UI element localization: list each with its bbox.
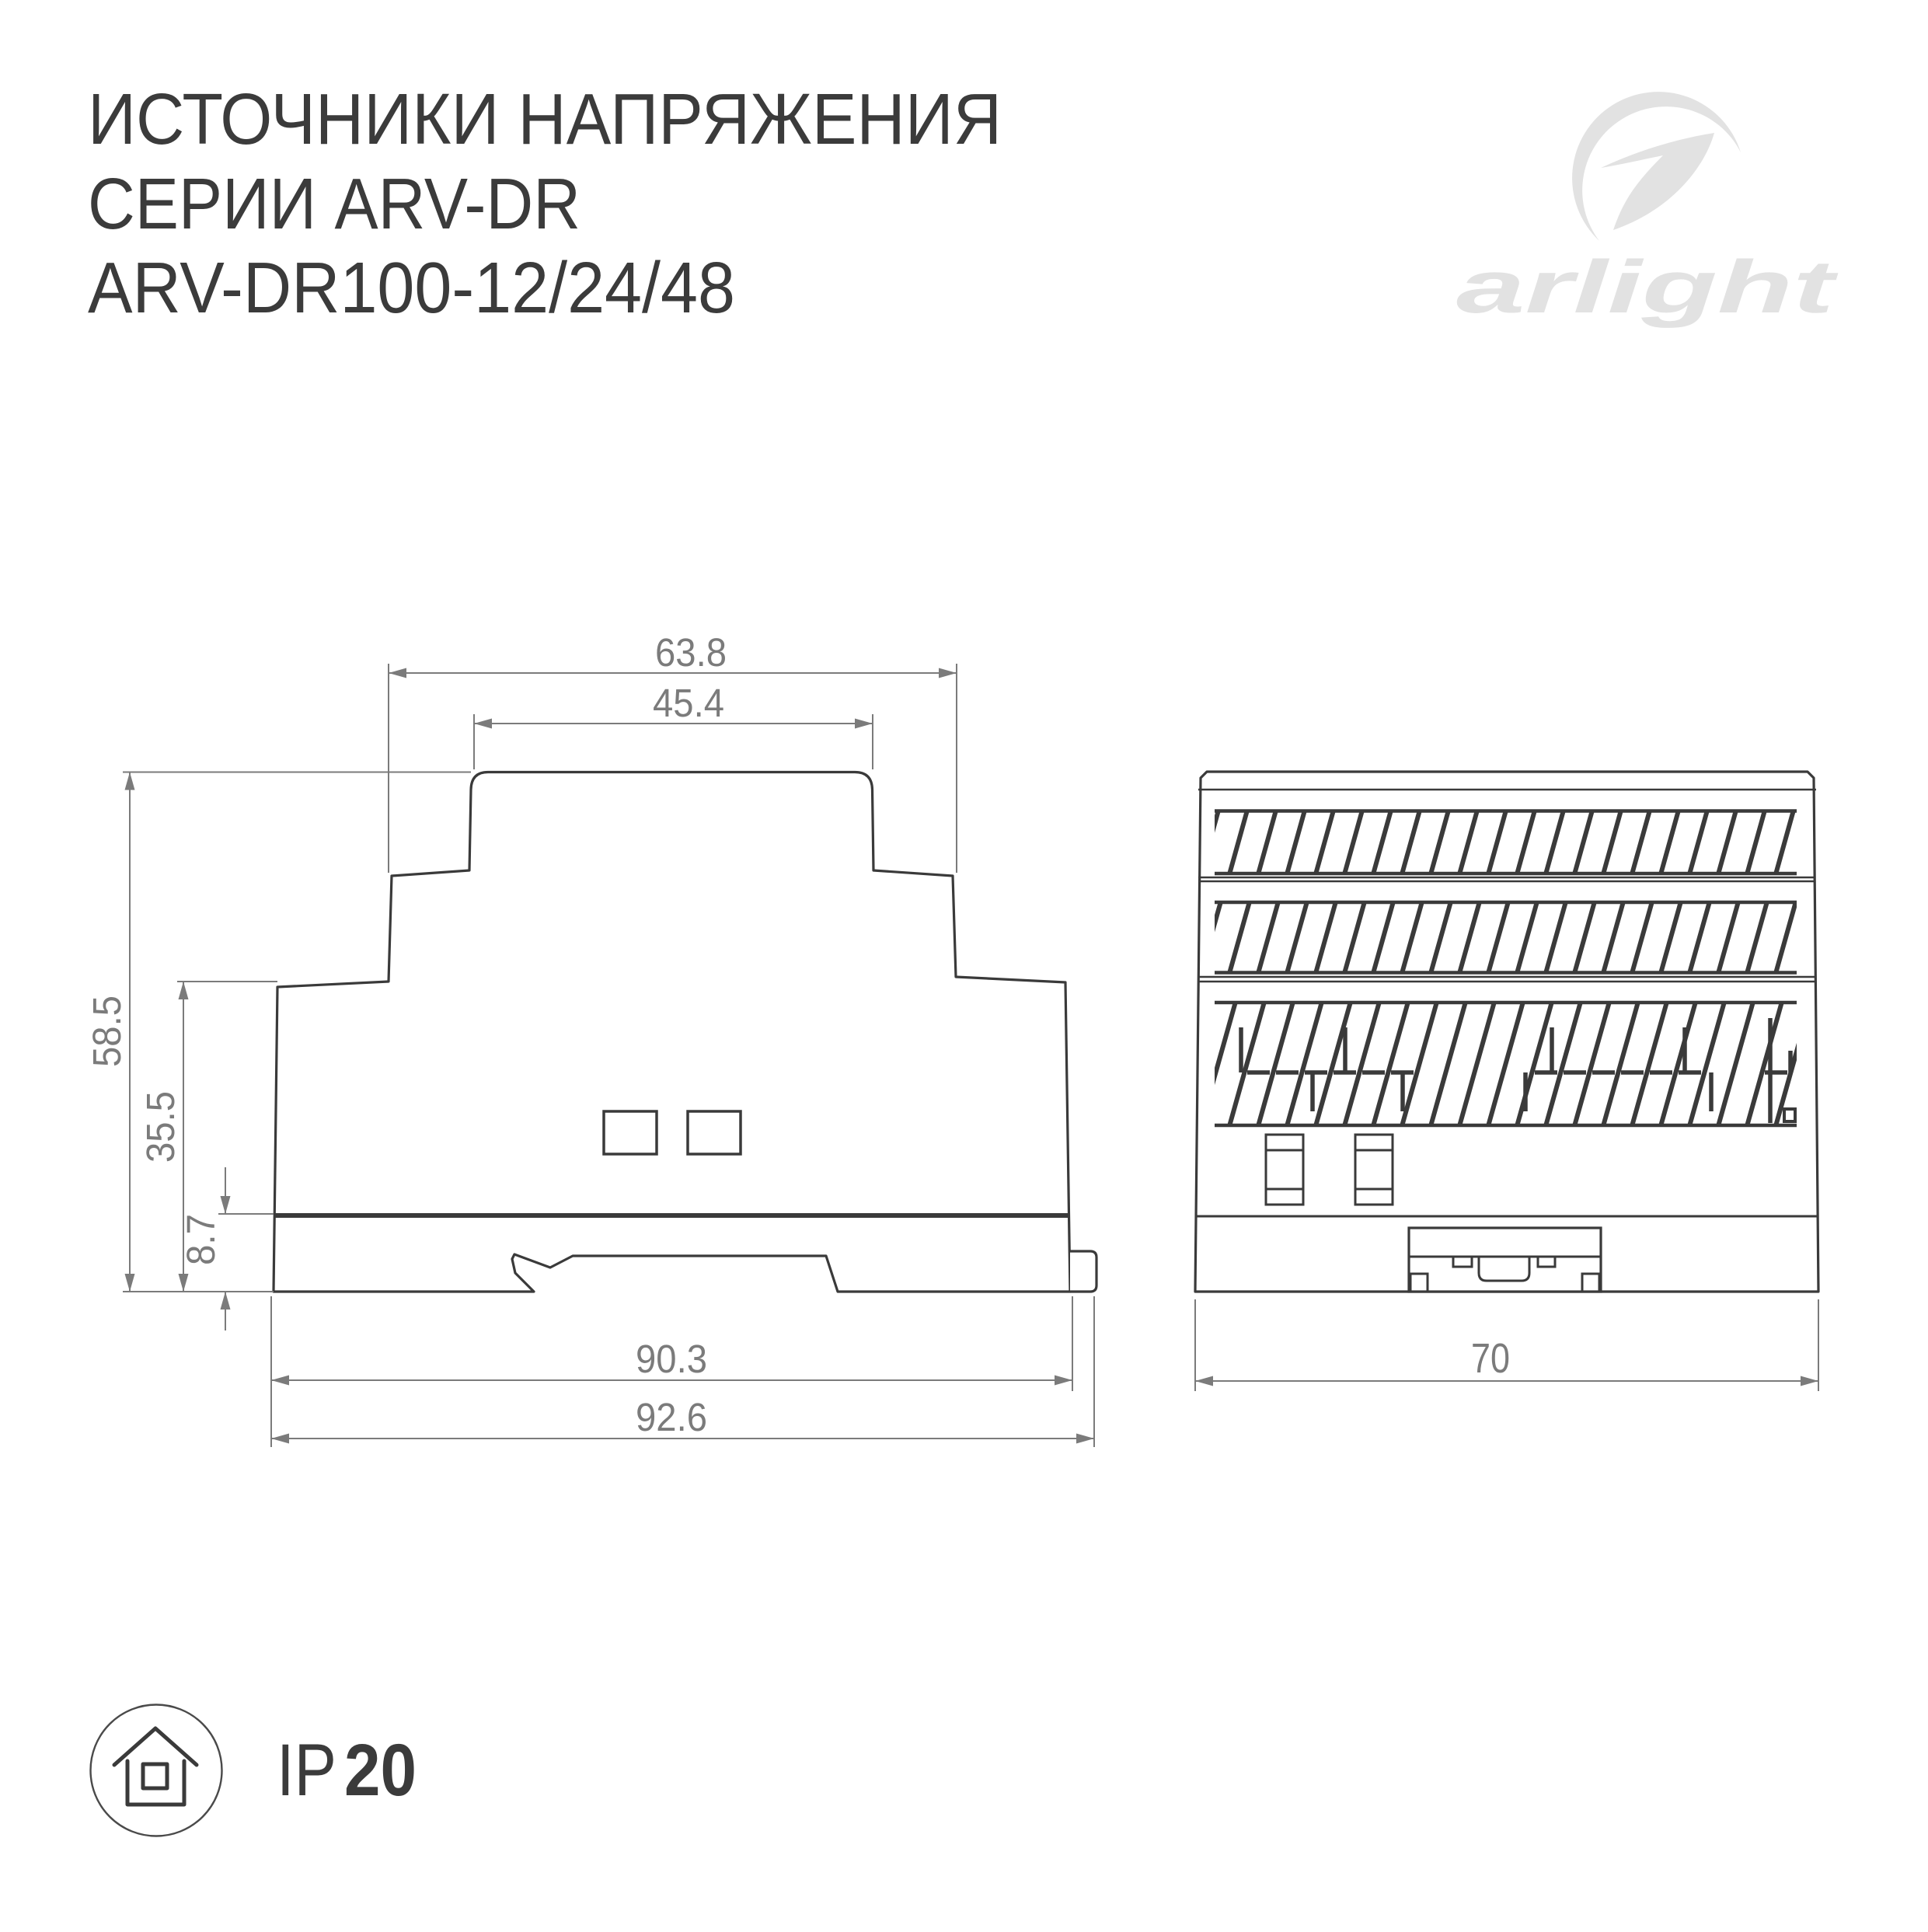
svg-text:70: 70 xyxy=(1471,1335,1510,1382)
svg-text:IP20: IP20 xyxy=(277,1729,417,1812)
svg-text:45.4: 45.4 xyxy=(653,681,724,725)
svg-text:92.6: 92.6 xyxy=(636,1395,707,1439)
svg-text:35.5: 35.5 xyxy=(138,1091,183,1163)
svg-text:СЕРИИ ARV-DR: СЕРИИ ARV-DR xyxy=(88,163,580,244)
svg-text:58.5: 58.5 xyxy=(85,996,129,1067)
svg-text:63.8: 63.8 xyxy=(655,630,727,675)
svg-text:8.7: 8.7 xyxy=(179,1214,223,1265)
svg-text:ИСТОЧНИКИ НАПРЯЖЕНИЯ: ИСТОЧНИКИ НАПРЯЖЕНИЯ xyxy=(88,78,1002,159)
svg-text:ARV-DR100-12/24/48: ARV-DR100-12/24/48 xyxy=(88,247,735,328)
svg-text:arlight: arlight xyxy=(1456,246,1839,329)
svg-text:90.3: 90.3 xyxy=(636,1337,707,1381)
